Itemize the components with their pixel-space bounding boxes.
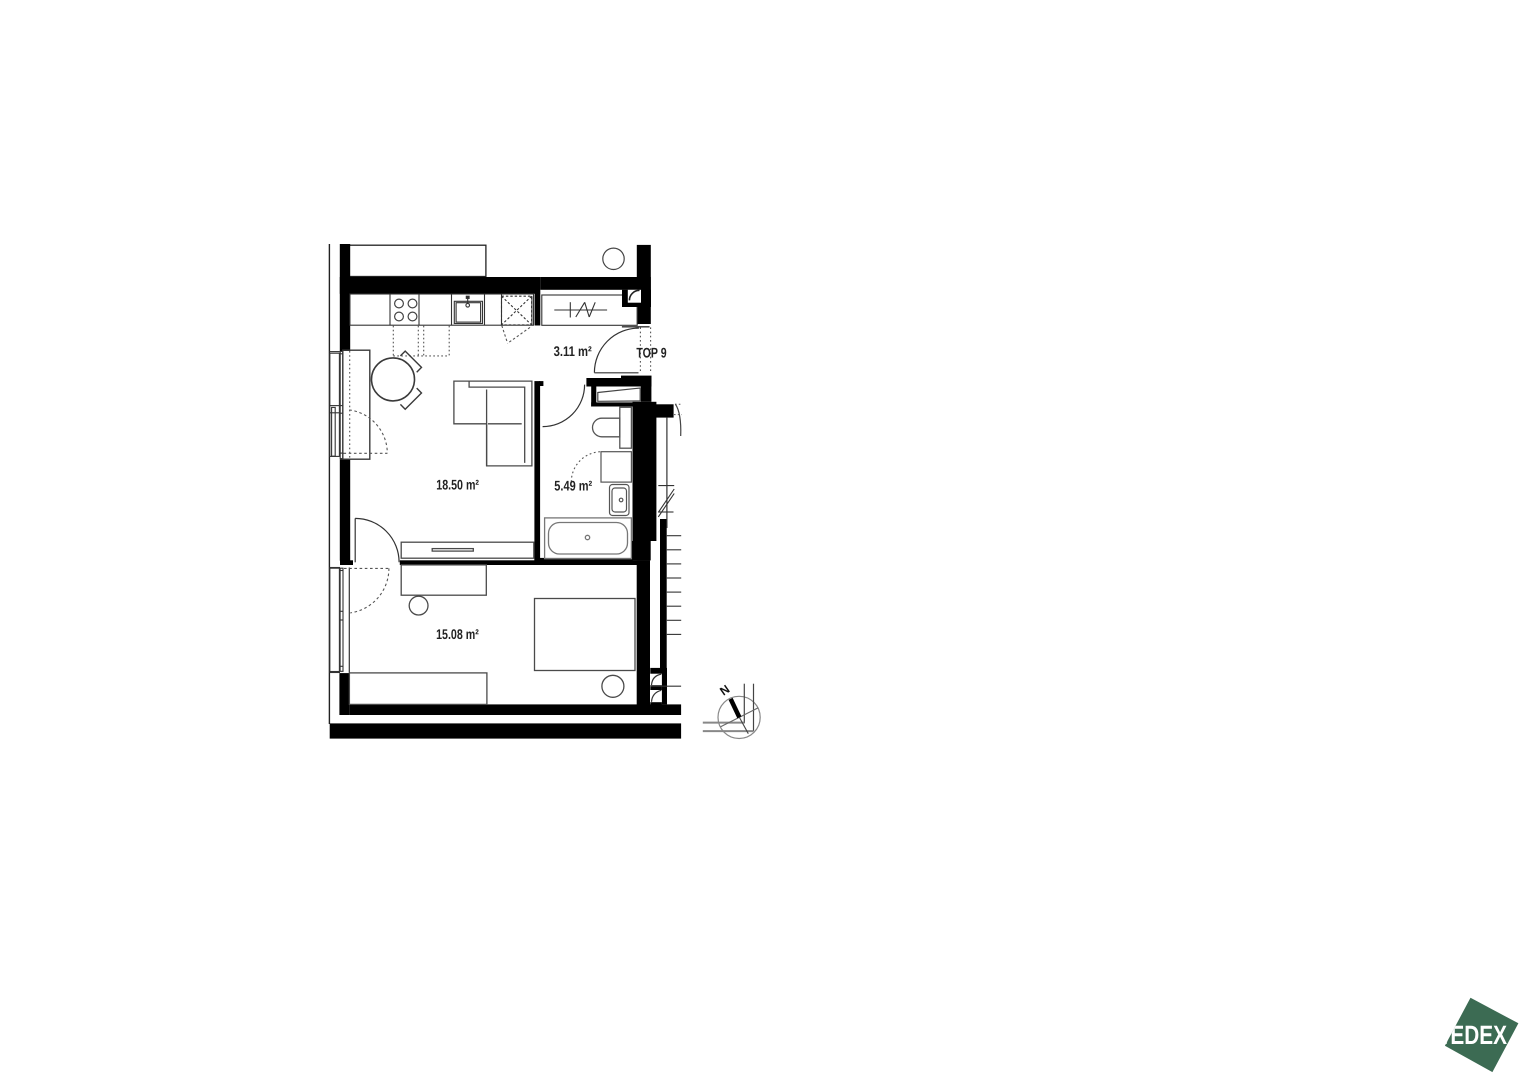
svg-text:WEDEX: WEDEX <box>1431 1020 1508 1050</box>
svg-text:15.08 m²: 15.08 m² <box>436 626 479 642</box>
svg-text:5.49 m²: 5.49 m² <box>554 478 592 494</box>
svg-text:TOP 9: TOP 9 <box>636 344 666 360</box>
svg-text:N: N <box>717 682 732 698</box>
svg-text:3.11 m²: 3.11 m² <box>554 343 592 359</box>
svg-text:18.50 m²: 18.50 m² <box>436 477 479 493</box>
